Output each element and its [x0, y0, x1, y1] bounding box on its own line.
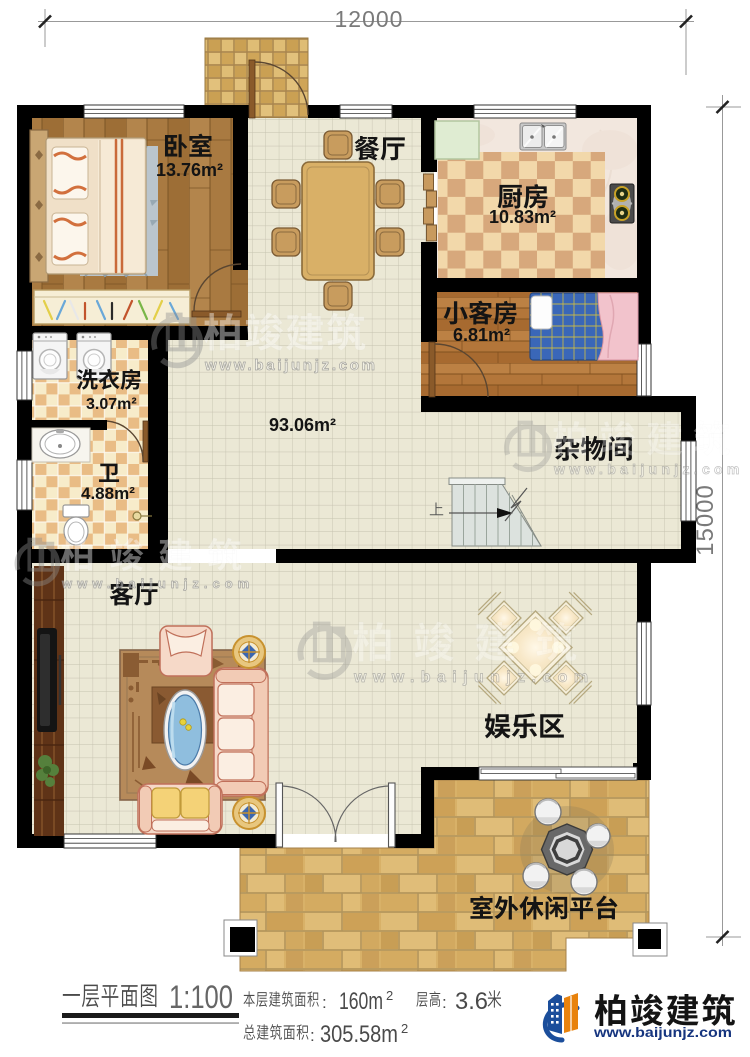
svg-text::: :: [322, 993, 327, 1012]
svg-text:www.baijunjz.com: www.baijunjz.com: [61, 576, 254, 591]
svg-text::: :: [442, 993, 447, 1012]
svg-text:4.88m²: 4.88m²: [81, 484, 135, 503]
svg-text:13.76m²: 13.76m²: [156, 160, 223, 180]
svg-text:www.baijunjz.com: www.baijunjz.com: [553, 461, 744, 477]
svg-text:160m: 160m: [339, 988, 383, 1015]
svg-text::: :: [310, 1026, 315, 1045]
svg-text:3.6: 3.6: [455, 988, 488, 1015]
svg-text:1:100: 1:100: [169, 979, 233, 1015]
svg-text:305.58m: 305.58m: [320, 1021, 398, 1048]
svg-text:93.06m²: 93.06m²: [269, 415, 336, 435]
svg-text:www.baijunjz.com: www.baijunjz.com: [204, 357, 378, 374]
svg-text:www.baijunjz.com: www.baijunjz.com: [353, 669, 595, 686]
svg-text:2: 2: [401, 1021, 408, 1036]
svg-text:3.07m²: 3.07m²: [86, 396, 137, 413]
svg-text:2: 2: [386, 988, 393, 1003]
svg-text:10.83m²: 10.83m²: [489, 207, 556, 227]
svg-text:www.baijunjz.com: www.baijunjz.com: [593, 1024, 732, 1040]
svg-text:12000: 12000: [335, 6, 404, 32]
svg-text:6.81m²: 6.81m²: [453, 325, 510, 345]
